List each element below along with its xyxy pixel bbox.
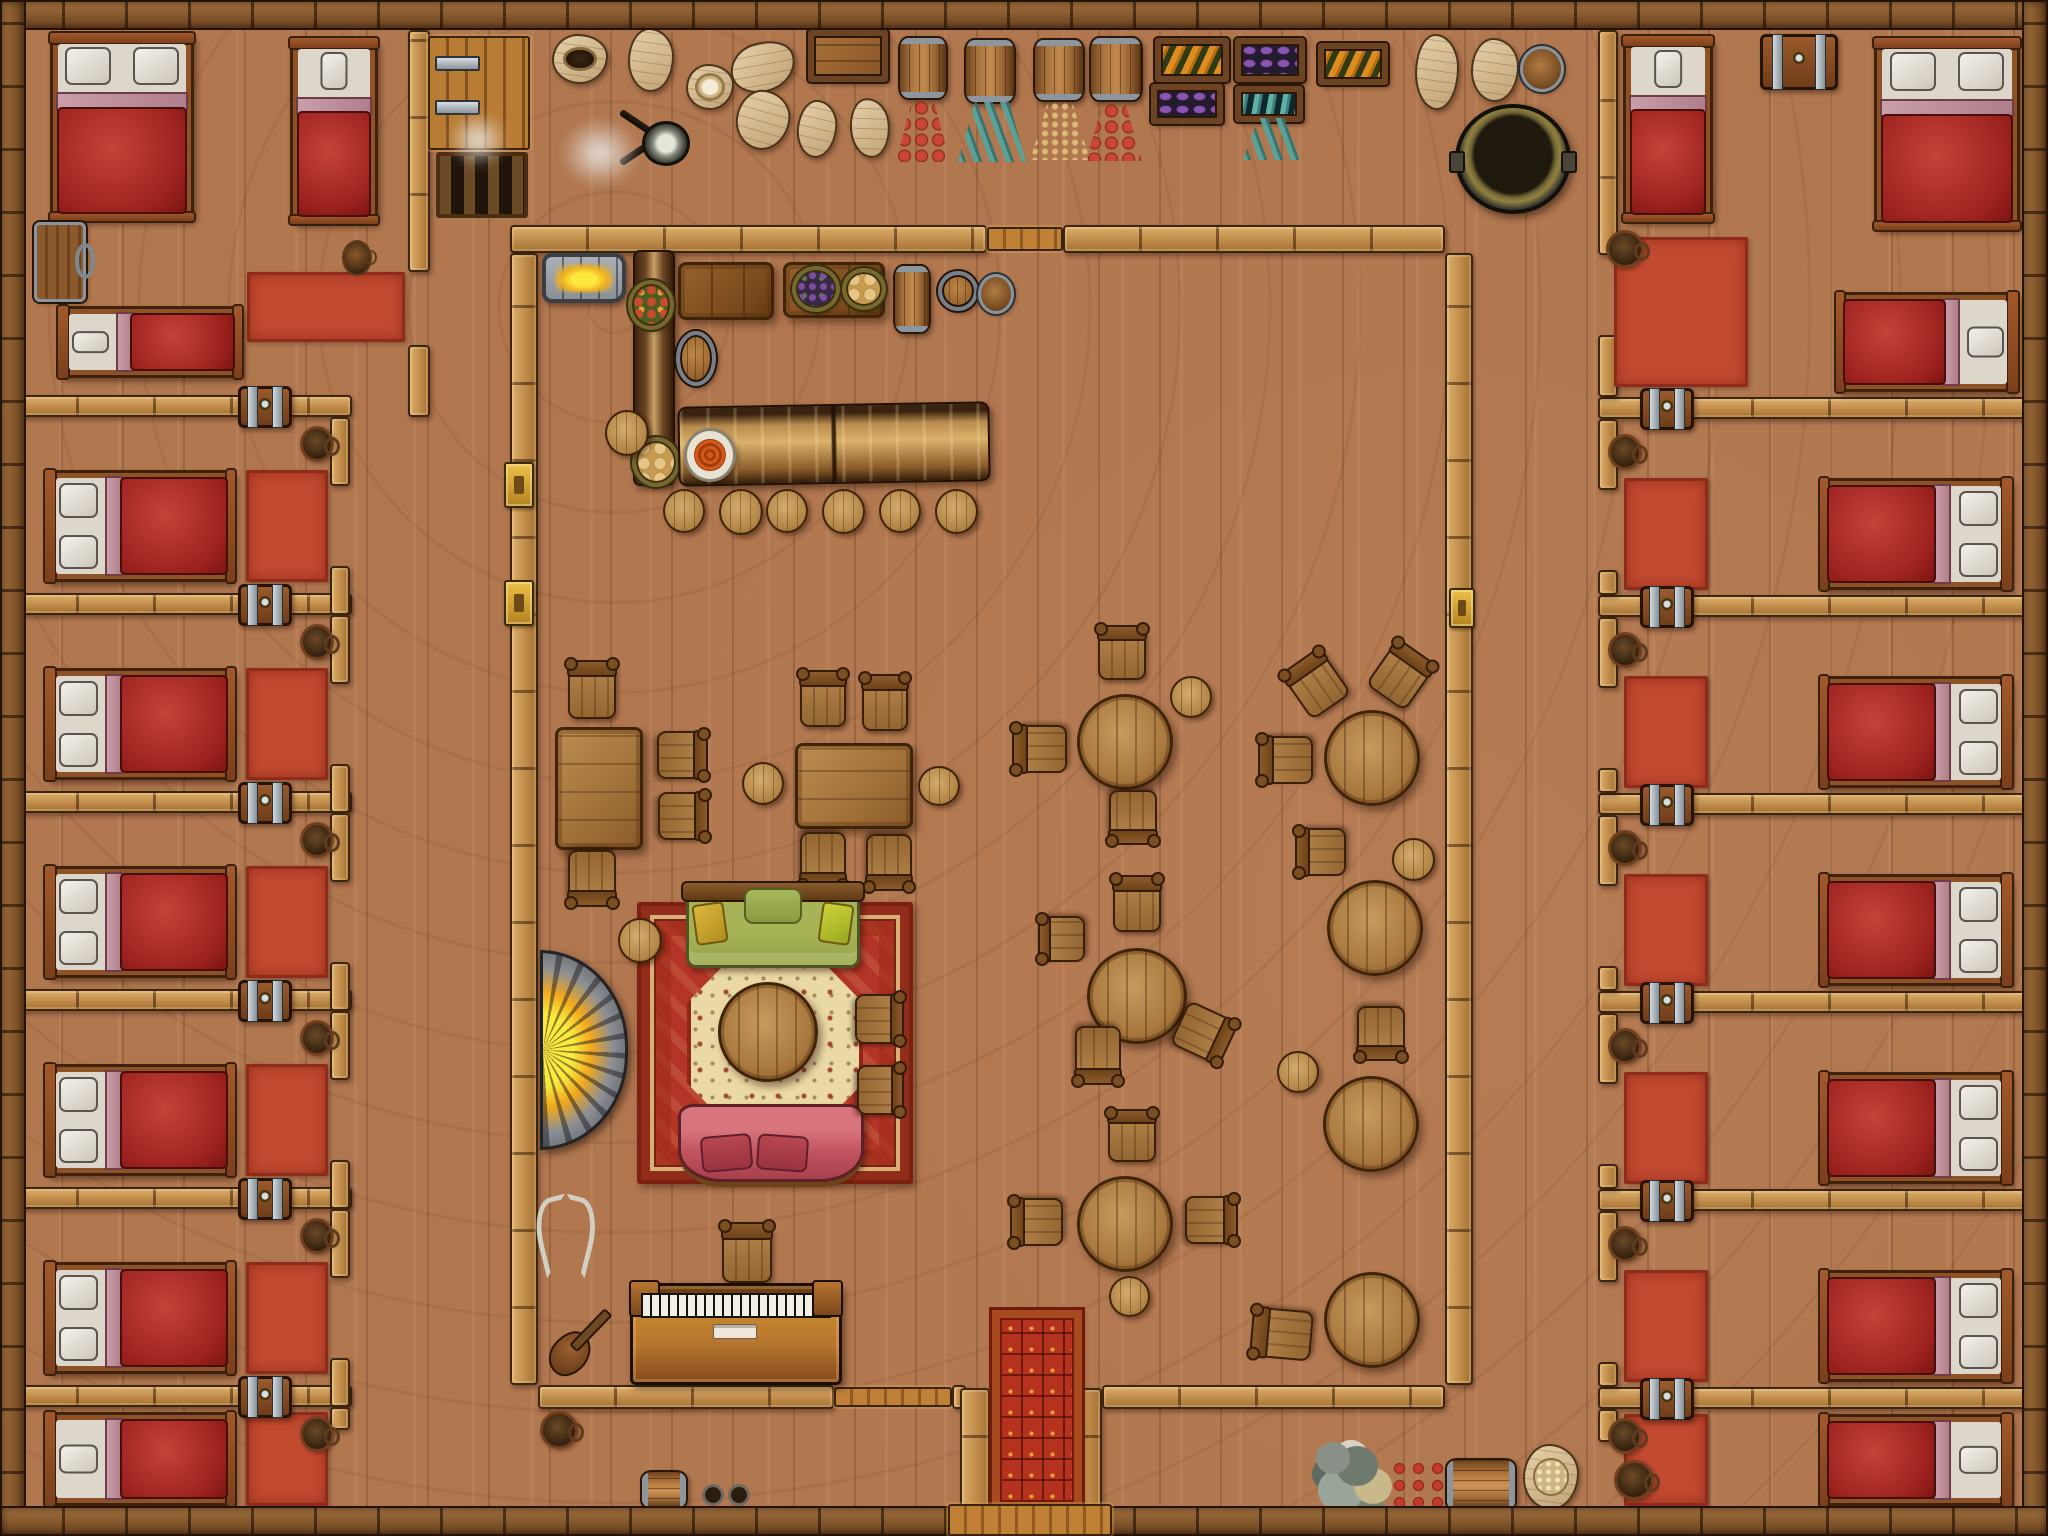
left-corridor-wall <box>330 1358 350 1407</box>
chair-back <box>861 674 909 691</box>
carrot-crate <box>1155 38 1229 82</box>
entrance-door <box>948 1504 1112 1536</box>
chair-back <box>567 890 617 907</box>
storage-chest <box>1640 388 1694 430</box>
chair-back <box>1249 1305 1271 1358</box>
pillow <box>1959 1137 1998 1172</box>
chair <box>568 661 616 719</box>
laundry-pile <box>1308 1436 1388 1514</box>
blanket <box>120 873 228 971</box>
bed-headboard <box>2000 476 2014 592</box>
double-bed <box>45 1064 235 1176</box>
wall-mug <box>300 1218 334 1254</box>
pillow <box>1654 50 1682 88</box>
chair-back <box>1010 1197 1025 1247</box>
wall-mug <box>1608 830 1642 866</box>
blanket <box>297 111 371 217</box>
bar-stool <box>935 489 978 534</box>
blanket <box>1827 1079 1936 1177</box>
pillow <box>59 681 98 716</box>
carrot-crate <box>1318 43 1388 85</box>
double-bed <box>50 33 194 221</box>
bed-headboard <box>2000 872 2014 988</box>
chair-back <box>1223 1195 1238 1245</box>
storage-chest <box>238 980 292 1022</box>
round-table <box>1324 1272 1420 1368</box>
bed-headboard <box>43 864 57 980</box>
pan-body <box>642 121 690 166</box>
round-table <box>1077 694 1173 790</box>
bed-headboard <box>43 1410 57 1508</box>
bed-headboard <box>1872 36 2022 50</box>
pillow <box>59 879 98 914</box>
apple-basket <box>628 280 674 330</box>
pillow <box>1959 1283 1998 1318</box>
right-corridor-wall <box>1598 1362 1618 1387</box>
right-corridor-wall <box>1598 570 1618 595</box>
right-corridor-wall <box>1598 30 1618 255</box>
chair-back <box>1108 829 1158 845</box>
stool <box>1392 838 1435 881</box>
bed-headboard <box>2000 674 2014 790</box>
chair <box>800 671 846 727</box>
blanket <box>1827 683 1936 781</box>
blanket <box>120 1269 228 1367</box>
room1-right-wall <box>408 30 430 272</box>
pillow <box>59 931 98 966</box>
green-sofa <box>686 888 860 968</box>
blanket <box>1827 1277 1936 1375</box>
pillow <box>1959 543 1998 578</box>
pillow <box>1959 491 1998 526</box>
grain-sack <box>1471 38 1519 102</box>
wall-mug <box>300 426 334 462</box>
chair <box>1296 828 1346 876</box>
stool <box>1277 1051 1319 1093</box>
chair-back <box>1279 646 1329 688</box>
bar-stool <box>719 489 763 535</box>
single-bed <box>290 38 378 224</box>
blanket <box>130 313 235 371</box>
round-table <box>1324 710 1420 806</box>
hall-top-wall <box>1063 225 1445 253</box>
chair <box>800 832 846 888</box>
bedroom-rug <box>1624 1270 1708 1382</box>
chair-back <box>891 1064 904 1116</box>
wall-mug <box>300 1416 334 1452</box>
chair-back <box>799 670 847 687</box>
dining-table <box>555 727 643 850</box>
open-sack <box>552 34 608 84</box>
pillow <box>320 52 347 90</box>
right-corridor-wall <box>1598 966 1618 991</box>
chair <box>1098 626 1146 680</box>
wall-torch <box>1449 588 1475 628</box>
storage-chest <box>238 1178 292 1220</box>
grain-sack <box>628 28 674 92</box>
chair-back <box>1074 1068 1122 1085</box>
storage-chest <box>238 1376 292 1418</box>
left-corridor-wall <box>330 1160 350 1209</box>
armchair <box>857 1065 903 1115</box>
kitchen-door <box>987 227 1063 251</box>
grain-sack <box>1523 1444 1579 1510</box>
double-bed <box>1820 478 2012 590</box>
right-corridor-wall <box>1598 768 1618 793</box>
left-wing-divider-wall <box>0 1385 352 1407</box>
tomato-spill <box>896 100 950 162</box>
left-corridor-wall <box>330 764 350 813</box>
barrel <box>893 264 931 334</box>
chair-back <box>693 730 708 780</box>
hall-bottom-wall <box>538 1385 834 1409</box>
bed-headboard <box>48 31 196 45</box>
pillow <box>59 1275 98 1310</box>
entrance-runner-rug <box>992 1310 1082 1510</box>
bedroom-rug <box>247 272 405 342</box>
bucket <box>1520 46 1564 92</box>
wall-mug <box>300 822 334 858</box>
hall-bottom-wall <box>1102 1385 1445 1409</box>
double-bed <box>1874 38 2020 230</box>
piano <box>630 1283 842 1385</box>
chair <box>1075 1026 1121 1084</box>
blanket <box>1827 1421 1936 1499</box>
blanket <box>1827 881 1936 979</box>
bedroom-rug <box>1624 1072 1708 1184</box>
stool <box>618 918 662 963</box>
chair <box>1185 1196 1237 1244</box>
chair <box>1108 1110 1156 1162</box>
eggplant-crate <box>1151 84 1223 124</box>
chair <box>1357 1006 1405 1060</box>
storage-chest <box>238 782 292 824</box>
floor-mug <box>1614 1460 1654 1500</box>
storage-chest <box>1640 1378 1694 1420</box>
blanket <box>120 1071 228 1169</box>
bed-headboard <box>288 36 380 50</box>
spectacles <box>702 1482 750 1504</box>
bedroom-rug <box>246 470 328 582</box>
bar-table <box>678 262 774 320</box>
antler-trophy <box>536 1188 596 1280</box>
chair <box>1011 1198 1063 1246</box>
pillow <box>59 483 98 518</box>
bedroom-rug <box>246 1262 328 1374</box>
chair <box>568 850 616 906</box>
chair-back <box>567 660 617 677</box>
chair <box>1039 916 1085 962</box>
wall-mug <box>1608 1028 1642 1064</box>
double-bed <box>1820 874 2012 986</box>
double-bed <box>1820 676 2012 788</box>
barrel <box>898 36 948 100</box>
left-wing-divider-wall <box>0 791 352 813</box>
left-corridor-wall <box>330 962 350 1011</box>
chair <box>1365 638 1436 711</box>
hall-left-wall <box>510 253 538 1385</box>
coffee-cup <box>342 240 372 276</box>
pillow <box>1959 939 1998 974</box>
pillow <box>59 1327 98 1362</box>
lounge-round-table <box>718 982 818 1082</box>
chair-back <box>1012 724 1028 774</box>
double-bed <box>45 668 235 780</box>
pillow <box>1959 1446 1998 1474</box>
double-bed <box>45 470 235 582</box>
round-table <box>1323 1076 1419 1172</box>
chair-back <box>721 1222 773 1240</box>
room1-right-wall <box>408 345 430 417</box>
piano-stool <box>722 1223 772 1283</box>
fireplace <box>540 950 628 1150</box>
steam-cloud <box>448 112 508 168</box>
pillow <box>1959 741 1998 776</box>
small-barrel <box>640 1470 688 1510</box>
storage-chest <box>238 584 292 626</box>
blanket <box>120 675 228 773</box>
pillow <box>1959 1085 1998 1120</box>
pillow <box>59 1077 98 1112</box>
bedroom-rug <box>1624 874 1708 986</box>
fish-spill <box>1243 118 1305 160</box>
chair <box>1250 1306 1314 1361</box>
bed-headboard <box>43 1062 57 1178</box>
bedroom-rug <box>1624 676 1708 788</box>
single-bed <box>1836 292 2018 392</box>
single-bed <box>1623 36 1713 222</box>
bar-stool <box>663 489 705 533</box>
grain-spill <box>1030 102 1090 160</box>
bucket <box>978 274 1014 314</box>
cauldron <box>1455 104 1571 214</box>
bed-headboard <box>1621 34 1715 48</box>
grain-sack <box>847 96 893 160</box>
storage-chest <box>1640 982 1694 1024</box>
chair-back <box>1038 915 1051 963</box>
bar-stool <box>766 489 808 533</box>
pillow <box>133 47 179 85</box>
wall-mug <box>1608 632 1642 668</box>
eggplant-crate <box>1235 38 1305 82</box>
double-bed <box>1820 1270 2012 1382</box>
flour-sack <box>686 64 734 110</box>
hall-top-wall <box>510 225 987 253</box>
empty-crate <box>808 30 888 82</box>
hall-right-wall <box>1445 253 1473 1385</box>
round-table <box>1077 1176 1173 1272</box>
bedroom-rug <box>246 668 328 780</box>
chair-back <box>1107 1109 1157 1124</box>
outer-wall-right <box>2022 0 2048 1536</box>
fish-spill <box>958 102 1026 162</box>
blanket <box>1843 299 1946 385</box>
wall-torch <box>504 462 534 508</box>
outer-wall-top <box>0 0 2048 30</box>
chair <box>657 731 707 779</box>
pillow <box>1959 887 1998 922</box>
bed-headboard <box>56 304 70 380</box>
single-bed <box>45 1412 235 1506</box>
left-corridor-wall <box>330 566 350 615</box>
double-bed <box>45 1262 235 1374</box>
bed-headboard <box>2000 1070 2014 1186</box>
bar-stool <box>605 410 649 456</box>
bed-headboard <box>2000 1268 2014 1384</box>
pillow <box>59 733 98 768</box>
chair <box>866 834 912 890</box>
chair-back <box>1356 1045 1406 1061</box>
chair <box>658 792 708 840</box>
blanket <box>57 107 187 214</box>
pillow <box>59 535 98 570</box>
left-wing-divider-wall <box>0 395 352 417</box>
tomato-spill <box>1086 103 1142 161</box>
wall-mug <box>1608 1418 1642 1454</box>
pillow <box>59 1444 98 1473</box>
wall-torch <box>504 580 534 626</box>
pillow <box>72 331 109 353</box>
barrel-on-side <box>1445 1458 1517 1512</box>
bar-stool <box>822 489 865 534</box>
blanket <box>1827 485 1936 583</box>
berry-spill <box>1390 1460 1450 1510</box>
fish-crate <box>1235 86 1303 122</box>
bed-headboard <box>2006 290 2020 394</box>
tavern-map-canvas[interactable] <box>0 0 2048 1536</box>
bed-headboard <box>43 1260 57 1376</box>
pillow <box>1959 1335 1998 1370</box>
blanket <box>120 1419 228 1499</box>
storage-chest <box>1640 1180 1694 1222</box>
spaghetti-plate <box>684 428 736 482</box>
chair-back <box>1295 827 1310 877</box>
grain-sack <box>1415 34 1459 110</box>
chair <box>1259 736 1313 784</box>
bedroom-rug <box>246 1064 328 1176</box>
left-wing-divider-wall <box>0 989 352 1011</box>
chair-back <box>1388 637 1438 679</box>
barrel <box>1089 36 1143 102</box>
storage-chest <box>1640 586 1694 628</box>
single-bed <box>1820 1414 2012 1506</box>
outer-wall-left <box>0 0 26 1536</box>
wall-mug <box>1608 434 1642 470</box>
pillow <box>1958 52 2004 91</box>
sheet-music <box>713 1324 756 1338</box>
hall-back-door <box>834 1387 952 1407</box>
red-couch <box>678 1104 864 1182</box>
bed-headboard <box>2000 1412 2014 1508</box>
wall-mug <box>1606 230 1644 268</box>
chair <box>1013 725 1067 773</box>
stool <box>742 762 784 805</box>
pillow <box>65 47 111 85</box>
left-wing-divider-wall <box>0 1187 352 1209</box>
bar-stool <box>879 489 921 533</box>
grape-bowl <box>792 266 840 312</box>
armchair <box>855 994 903 1044</box>
chair-back <box>1097 625 1147 641</box>
double-bed <box>45 866 235 978</box>
chair-back <box>1112 875 1162 892</box>
blanket <box>120 477 228 575</box>
chair-back <box>1258 735 1274 785</box>
stool <box>1109 1276 1150 1317</box>
storage-chest <box>1760 34 1838 90</box>
chair-back <box>694 791 709 841</box>
blanket <box>1630 109 1706 215</box>
violin <box>534 1294 623 1387</box>
chair <box>1109 790 1157 844</box>
piano-keys <box>641 1293 831 1318</box>
stool <box>918 766 960 806</box>
storage-chest <box>1640 784 1694 826</box>
sofa-pillow <box>817 901 854 946</box>
barrel <box>1033 38 1085 102</box>
chair-back <box>890 993 904 1045</box>
steam-cloud <box>560 118 640 188</box>
barrel <box>964 38 1016 104</box>
blanket <box>1881 114 2013 223</box>
pillow <box>1967 326 2004 357</box>
grain-sack <box>795 98 840 159</box>
double-bed <box>1820 1072 2012 1184</box>
wall-tankard <box>34 222 86 302</box>
wall-mug <box>300 624 334 660</box>
glowing-stove <box>542 253 626 303</box>
chair <box>1113 876 1161 932</box>
entry-vestibule-post <box>960 1388 990 1514</box>
bed-headboard <box>43 468 57 584</box>
right-corridor-wall <box>1598 1164 1618 1189</box>
chair-back <box>1204 1015 1240 1067</box>
grain-sack <box>732 87 794 154</box>
barrel-top <box>938 271 978 311</box>
pillow <box>59 1129 98 1164</box>
wall-mug <box>300 1020 334 1056</box>
chair <box>862 675 908 731</box>
wall-mug <box>1608 1226 1642 1262</box>
pillow <box>1890 52 1936 91</box>
potato-bowl <box>842 268 886 310</box>
chair-back <box>865 874 913 891</box>
storage-chest <box>238 386 292 428</box>
chair <box>1280 647 1351 720</box>
sofa-pillow <box>691 901 728 946</box>
floor-mug <box>540 1411 578 1449</box>
single-bed <box>58 306 242 378</box>
round-table <box>1327 880 1423 976</box>
bedroom-rug <box>1624 478 1708 590</box>
bedroom-rug <box>246 866 328 978</box>
stool <box>1170 676 1212 718</box>
pillow <box>1959 689 1998 724</box>
sofa-cushion <box>744 888 801 924</box>
barrel-top <box>676 331 716 386</box>
bed-headboard <box>43 666 57 782</box>
dining-table <box>795 743 913 829</box>
left-wing-divider-wall <box>0 593 352 615</box>
